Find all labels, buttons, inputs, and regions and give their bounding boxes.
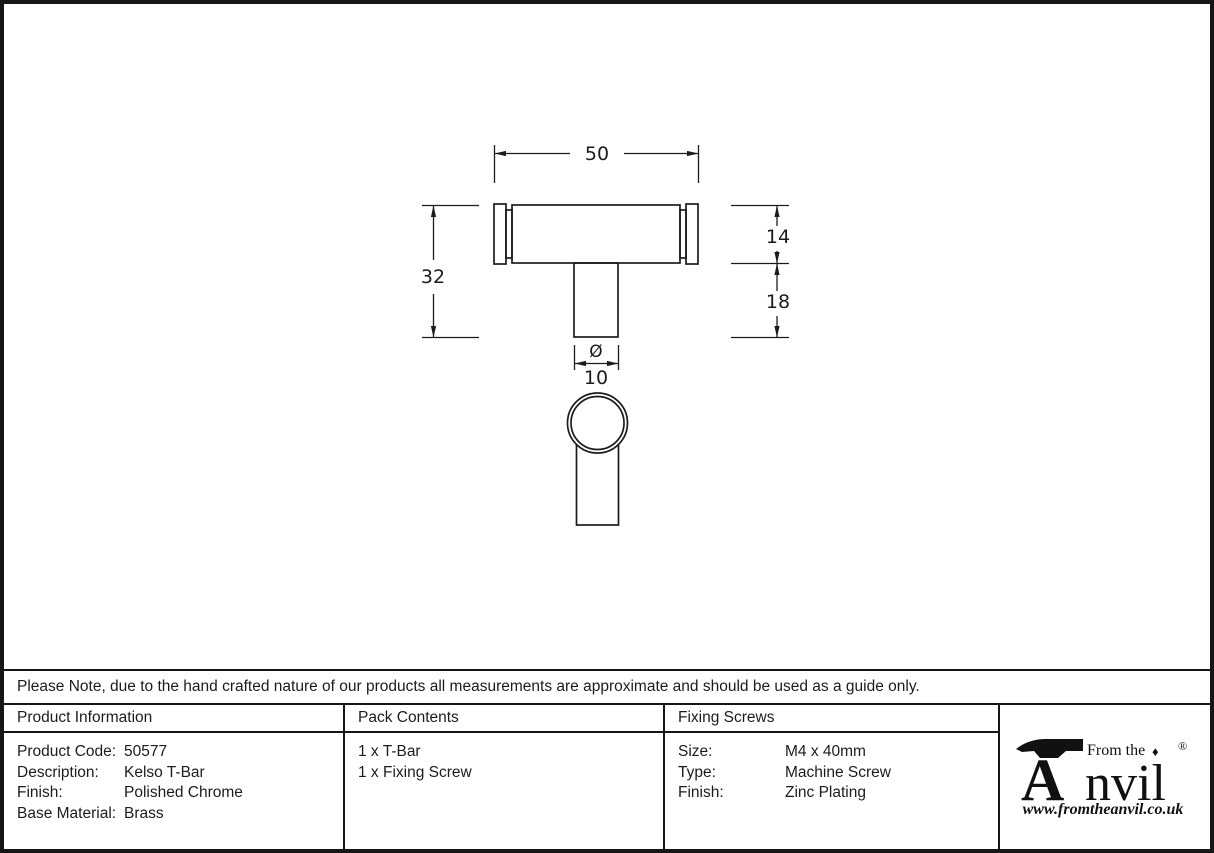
fixing-screws-header-label: Fixing Screws [678, 709, 774, 727]
table-row: Product Code: 50577 [17, 742, 343, 763]
pack-contents-header: Pack Contents [345, 705, 663, 733]
screw-size-value: M4 x 40mm [785, 742, 866, 763]
tbar-body [512, 205, 680, 263]
dim-stem-diameter-label: 10 [584, 367, 608, 389]
dim-bar-height-label: 14 [766, 226, 790, 248]
finish-value: Polished Chrome [124, 783, 243, 804]
screw-size-label: Size: [678, 742, 785, 763]
screw-type-label: Type: [678, 763, 785, 784]
product-code-value: 50577 [124, 742, 167, 763]
fixing-screws-body: Size: M4 x 40mm Type: Machine Screw Fini… [665, 733, 998, 804]
tbar-left-neck [506, 210, 512, 258]
screw-type-value: Machine Screw [785, 763, 891, 784]
tbar-left-cap [494, 204, 506, 264]
measurement-note-text: Please Note, due to the hand crafted nat… [17, 678, 920, 696]
fixing-screws-column: Fixing Screws Size: M4 x 40mm Type: Mach… [665, 705, 1000, 849]
table-row: Type: Machine Screw [678, 763, 998, 784]
dimension-width: 50 [495, 143, 699, 183]
product-code-label: Product Code: [17, 742, 124, 763]
spec-sheet-page: 50 32 14 18 Ø 10 [0, 0, 1214, 853]
product-information-column: Product Information Product Code: 50577 … [4, 705, 345, 849]
brand-website: www.fromtheanvil.co.uk [1023, 801, 1184, 818]
tbar-right-cap [686, 204, 698, 264]
fixing-screws-header: Fixing Screws [665, 705, 998, 733]
list-item: 1 x T-Bar [358, 742, 663, 763]
anvil-logo-icon: A From the ♦ nvil ® www.fromtheanvil.co.… [1015, 736, 1195, 818]
pack-contents-header-label: Pack Contents [358, 709, 459, 727]
table-row: Size: M4 x 40mm [678, 742, 998, 763]
measurement-note-row: Please Note, due to the hand crafted nat… [4, 669, 1210, 703]
base-material-value: Brass [124, 804, 164, 825]
pack-contents-body: 1 x T-Bar 1 x Fixing Screw [345, 733, 663, 783]
screw-finish-value: Zinc Plating [785, 783, 866, 804]
dim-total-height-label: 32 [421, 266, 445, 288]
base-material-label: Base Material: [17, 804, 124, 825]
screw-finish-label: Finish: [678, 783, 785, 804]
dimension-stem-diameter: Ø 10 [575, 342, 619, 389]
dimension-total-height: 32 [421, 206, 479, 338]
front-view [494, 204, 698, 337]
dim-stem-height-label: 18 [766, 291, 790, 313]
brand-logo-cell: A From the ♦ nvil ® www.fromtheanvil.co.… [1000, 705, 1210, 849]
product-information-body: Product Code: 50577 Description: Kelso T… [4, 733, 343, 824]
list-item: 1 x Fixing Screw [358, 763, 663, 784]
table-row: Base Material: Brass [17, 804, 343, 825]
registered-trademark: ® [1178, 739, 1187, 753]
spec-table: Product Information Product Code: 50577 … [4, 703, 1210, 849]
side-view [568, 393, 628, 525]
from-the-anvil-logo: A From the ♦ nvil ® www.fromtheanvil.co.… [1015, 736, 1195, 823]
dimension-bar-and-stem: 14 18 [731, 206, 790, 338]
dim-width-label: 50 [585, 143, 609, 165]
table-row: Description: Kelso T-Bar [17, 763, 343, 784]
product-information-header: Product Information [4, 705, 343, 733]
diameter-symbol: Ø [589, 342, 602, 362]
technical-drawing: 50 32 14 18 Ø 10 [4, 4, 1210, 669]
side-bar-outer-circle [568, 393, 628, 453]
finish-label: Finish: [17, 783, 124, 804]
table-row: Finish: Zinc Plating [678, 783, 998, 804]
product-information-header-label: Product Information [17, 709, 152, 727]
description-value: Kelso T-Bar [124, 763, 205, 784]
tbar-right-neck [680, 210, 686, 258]
tbar-stem [574, 263, 618, 337]
table-row: Finish: Polished Chrome [17, 783, 343, 804]
pack-contents-column: Pack Contents 1 x T-Bar 1 x Fixing Screw [345, 705, 665, 849]
description-label: Description: [17, 763, 124, 784]
